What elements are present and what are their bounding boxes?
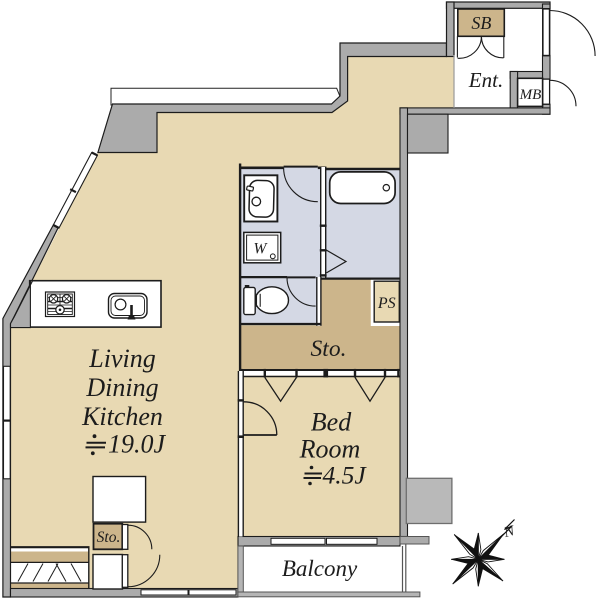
svg-text:Ent.: Ent. (468, 68, 503, 92)
svg-text:N: N (501, 523, 517, 541)
svg-text:MB: MB (519, 87, 542, 103)
svg-text:Balcony: Balcony (282, 556, 358, 581)
svg-text:Bed: Bed (311, 408, 352, 437)
svg-text:19.0J: 19.0J (108, 430, 167, 459)
svg-text:W: W (254, 241, 269, 258)
svg-text:Living: Living (88, 344, 155, 373)
svg-text:Sto.: Sto. (97, 529, 121, 546)
svg-text:4.5J: 4.5J (323, 460, 368, 489)
svg-text:Sto.: Sto. (311, 336, 347, 362)
svg-text:PS: PS (377, 295, 396, 312)
svg-text:Kitchen: Kitchen (81, 402, 163, 431)
svg-text:SB: SB (471, 13, 491, 33)
svg-text:Dining: Dining (85, 373, 158, 402)
